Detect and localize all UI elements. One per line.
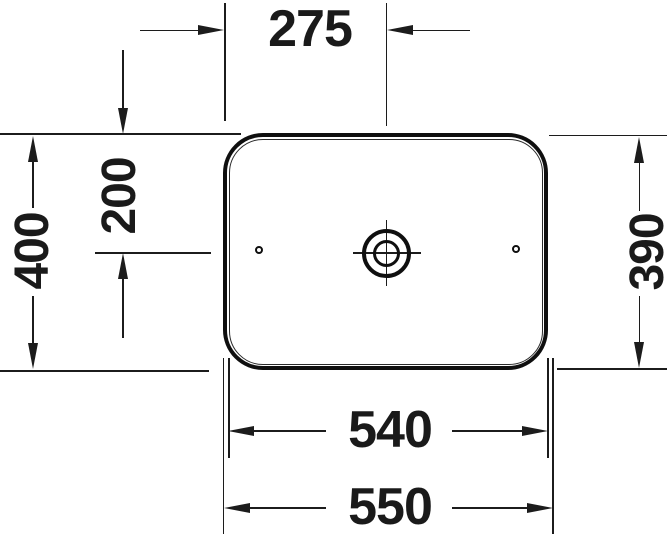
- dim-540-arrowhead-left: [228, 426, 254, 436]
- dim-label-400: 400: [9, 212, 57, 289]
- dim-550-stem-right: [452, 507, 527, 509]
- reference-line-top-right: [549, 135, 667, 137]
- extension-line-left-edge-top: [224, 3, 226, 121]
- reference-line-bottom-left: [0, 370, 209, 372]
- dim-540-stem-right: [452, 430, 523, 432]
- extension-line-bottom-left-inner: [228, 358, 230, 458]
- dim-275-stem-left: [140, 30, 200, 32]
- dim-390-arrowhead-down: [634, 342, 644, 368]
- dim-400-stem-top: [32, 160, 34, 208]
- dim-390-arrowhead-up: [634, 137, 644, 163]
- extension-line-drain-center-top: [386, 3, 388, 126]
- fixing-hole-left: [255, 246, 263, 254]
- extension-line-bottom-right-inner: [547, 358, 549, 458]
- dim-275-stem-right: [411, 30, 470, 32]
- dim-label-540: 540: [348, 404, 432, 456]
- dim-200-arrowhead-up: [118, 253, 128, 279]
- dim-200-arrowhead-down: [118, 108, 128, 134]
- dim-275-arrowhead-left: [387, 25, 413, 35]
- reference-line-bottom-right: [557, 368, 667, 370]
- dim-label-550: 550: [348, 481, 432, 533]
- dim-200-stem-bottom: [122, 278, 124, 338]
- dim-550-arrowhead-left: [224, 503, 250, 513]
- dim-550-arrowhead-right: [527, 503, 553, 513]
- dim-400-arrowhead-down: [28, 343, 38, 369]
- dim-550-stem-left: [249, 507, 326, 509]
- dim-540-stem-left: [253, 430, 326, 432]
- fixing-hole-right: [512, 245, 520, 253]
- dim-540-arrowhead-right: [522, 426, 548, 436]
- dim-390-stem-bottom: [639, 296, 641, 343]
- reference-line-drain-center: [95, 252, 211, 254]
- dim-275-arrowhead-right: [198, 25, 224, 35]
- dim-200-stem-top: [122, 50, 124, 110]
- technical-drawing-canvas: 275 200 400 390 540 550: [0, 0, 672, 538]
- dim-label-200: 200: [96, 157, 144, 234]
- dim-400-stem-bottom: [32, 296, 34, 344]
- dim-400-arrowhead-up: [28, 136, 38, 162]
- dim-label-275: 275: [268, 3, 352, 55]
- dim-390-stem-top: [639, 161, 641, 211]
- drain-inner-circle: [373, 240, 400, 267]
- dim-label-390: 390: [624, 213, 672, 290]
